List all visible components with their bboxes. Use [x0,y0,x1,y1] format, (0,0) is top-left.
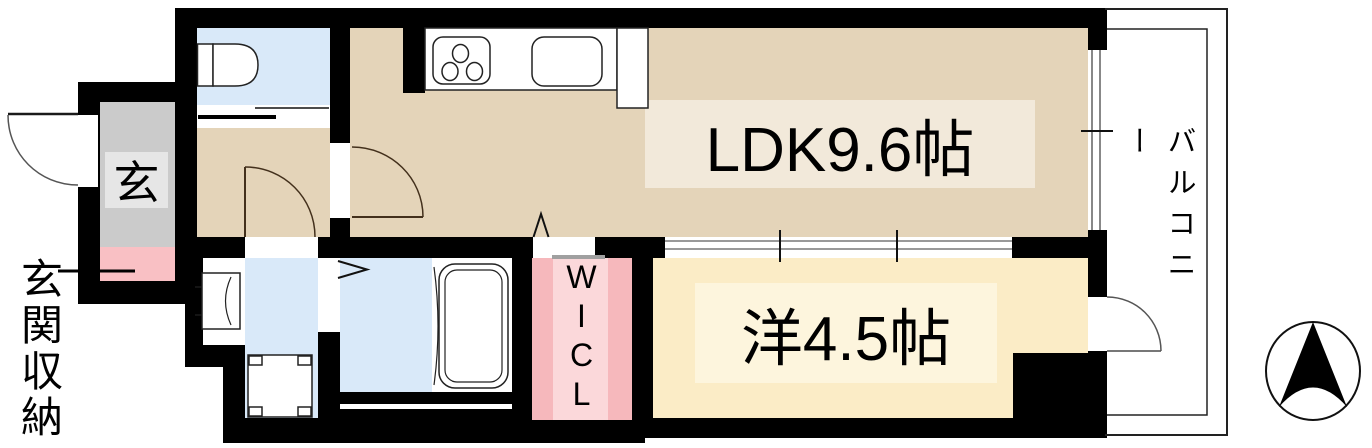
sliding-partition-icon [665,230,1012,262]
hall-ldk-door-swing-icon [352,147,423,217]
ldk-label: LDK9.6帖 [645,100,1035,188]
folding-door-icon [338,261,367,278]
floor-plan: LDK9.6帖 洋4.5帖 WICL バルコニー 玄 玄関収納 [0,0,1372,448]
north-arrow-icon [1266,322,1360,420]
wicl-door-mark-icon [534,214,549,237]
sliding-door-icon [198,108,329,117]
wicl-label: WICL [561,262,601,412]
entrance-storage-label: 玄関収納 [16,250,62,448]
hall-washroom-door-swing-icon [245,167,315,237]
washbasin-icon [195,273,240,329]
balcony-label: バルコニー [1141,126,1175,326]
toilet-icon [198,44,259,86]
washing-machine-pan-icon [248,355,312,417]
kitchen-sink-icon [532,37,602,86]
kitchen-counter [425,28,648,108]
bedroom-label: 洋4.5帖 [695,283,997,383]
kitchen-stove-icon [433,37,490,84]
front-door-swing-icon [8,114,78,185]
entrance-label: 玄 [105,152,168,208]
ldk-window-icon [1081,50,1113,230]
bathtub-icon [434,264,508,388]
